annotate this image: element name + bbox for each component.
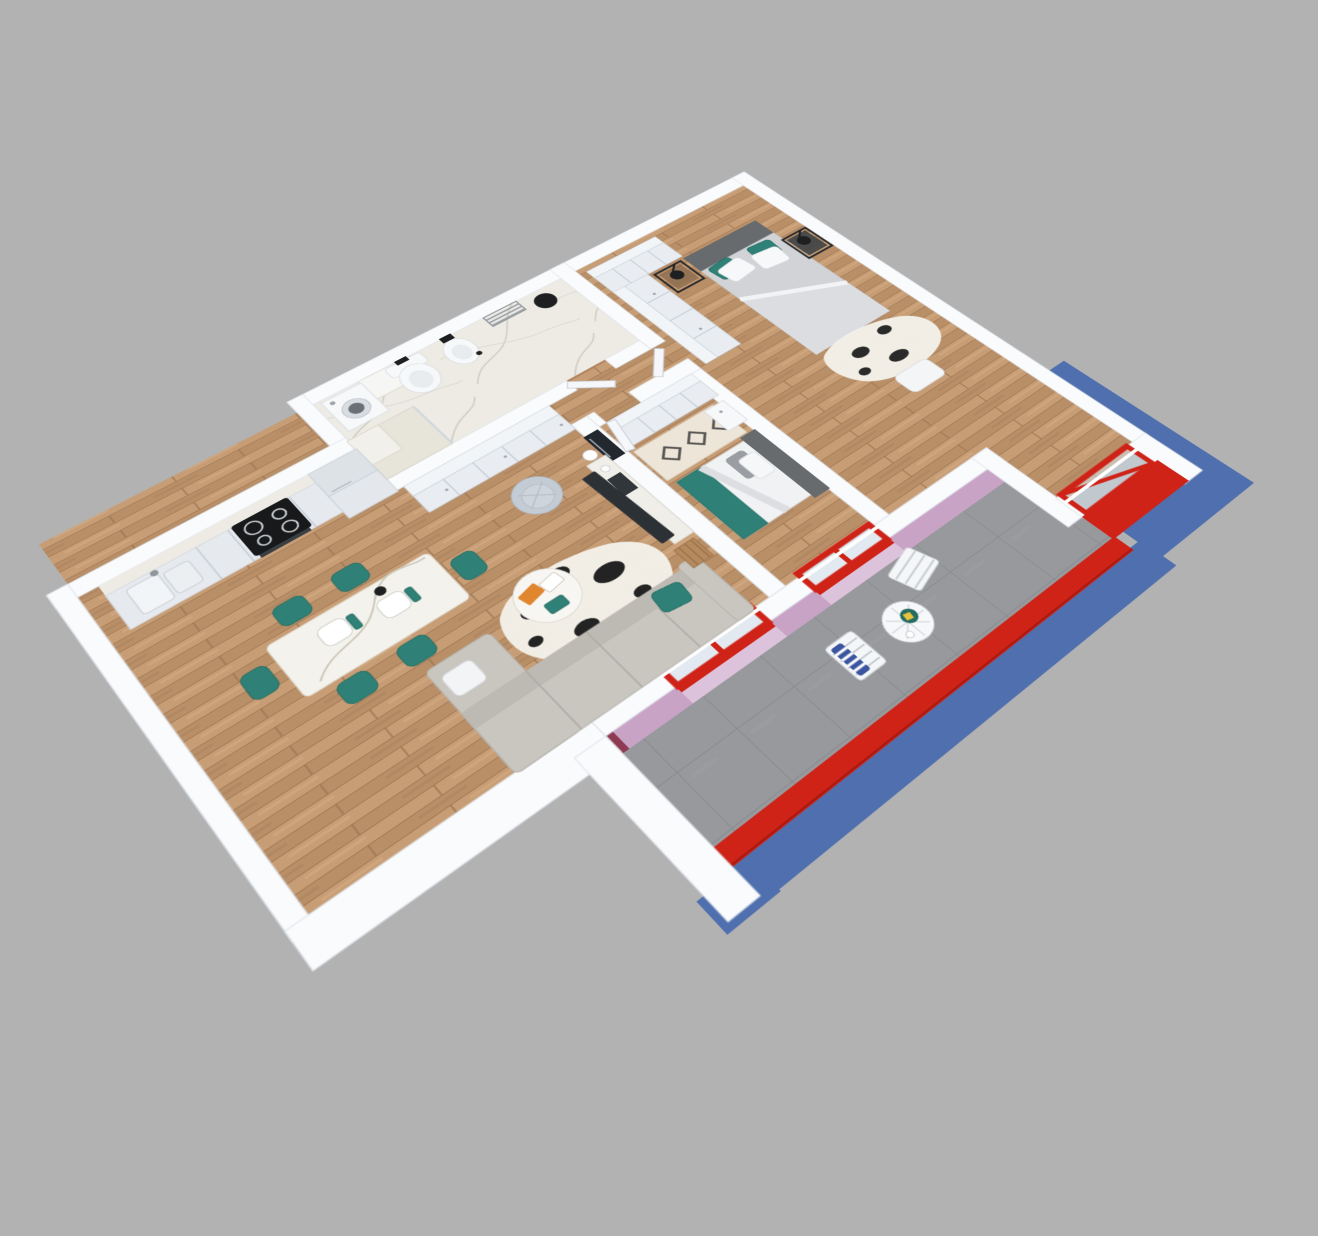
bedroom1-door-leaf bbox=[653, 348, 664, 376]
render-background bbox=[0, 0, 1318, 1236]
apartment-3d-plan bbox=[0, 158, 1286, 1191]
floor-plan-svg bbox=[0, 158, 1286, 1191]
bathroom-door-leaf bbox=[567, 381, 615, 389]
